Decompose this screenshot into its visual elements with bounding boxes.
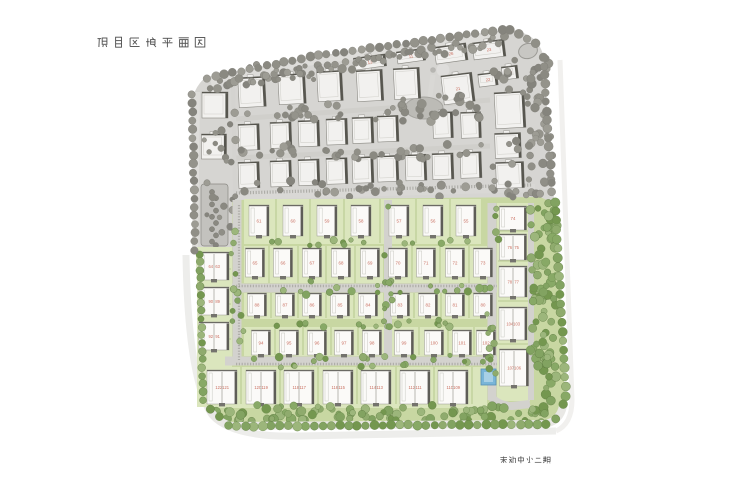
svg-text:90: 90: [209, 299, 214, 304]
svg-text:119: 119: [261, 385, 268, 390]
svg-text:75: 75: [514, 245, 519, 250]
svg-text:99: 99: [402, 340, 407, 345]
svg-text:78: 78: [508, 279, 513, 284]
svg-text:117: 117: [299, 385, 306, 390]
svg-text:98: 98: [370, 340, 375, 345]
svg-text:66: 66: [281, 260, 286, 265]
svg-text:84: 84: [366, 302, 371, 307]
svg-text:102: 102: [482, 340, 490, 345]
svg-text:63: 63: [215, 264, 220, 269]
svg-text:95: 95: [287, 340, 292, 345]
svg-text:57: 57: [397, 218, 402, 223]
svg-text:68: 68: [339, 260, 344, 265]
svg-text:80: 80: [481, 302, 486, 307]
svg-text:61: 61: [257, 218, 262, 223]
svg-text:73: 73: [481, 260, 486, 265]
svg-text:121: 121: [222, 385, 230, 390]
svg-text:64: 64: [209, 264, 214, 269]
svg-text:88: 88: [255, 302, 260, 307]
svg-text:58: 58: [359, 218, 364, 223]
svg-text:113: 113: [376, 385, 383, 390]
svg-text:111: 111: [415, 385, 422, 390]
svg-text:71: 71: [424, 260, 429, 265]
svg-text:86: 86: [310, 302, 315, 307]
svg-text:100: 100: [430, 340, 438, 345]
svg-text:70: 70: [396, 260, 401, 265]
svg-text:85: 85: [338, 302, 343, 307]
svg-text:92: 92: [209, 334, 214, 339]
svg-text:115: 115: [338, 385, 345, 390]
svg-text:72: 72: [453, 260, 458, 265]
svg-text:60: 60: [291, 218, 296, 223]
svg-text:101: 101: [458, 340, 466, 345]
svg-text:89: 89: [215, 299, 220, 304]
svg-text:74: 74: [511, 216, 516, 221]
svg-text:65: 65: [253, 260, 258, 265]
svg-text:76: 76: [508, 245, 513, 250]
svg-text:106: 106: [514, 365, 522, 370]
svg-text:59: 59: [325, 218, 330, 223]
svg-text:55: 55: [464, 218, 469, 223]
svg-text:81: 81: [453, 302, 458, 307]
svg-text:69: 69: [368, 260, 373, 265]
svg-text:83: 83: [398, 302, 403, 307]
svg-text:91: 91: [215, 334, 220, 339]
svg-text:67: 67: [310, 260, 315, 265]
svg-text:97: 97: [342, 340, 347, 345]
svg-text:56: 56: [431, 218, 436, 223]
svg-text:109: 109: [453, 385, 461, 390]
svg-text:87: 87: [283, 302, 288, 307]
svg-text:96: 96: [315, 340, 320, 345]
svg-text:82: 82: [426, 302, 431, 307]
svg-text:77: 77: [514, 279, 519, 284]
svg-text:94: 94: [259, 340, 264, 345]
svg-text:103: 103: [513, 321, 521, 326]
